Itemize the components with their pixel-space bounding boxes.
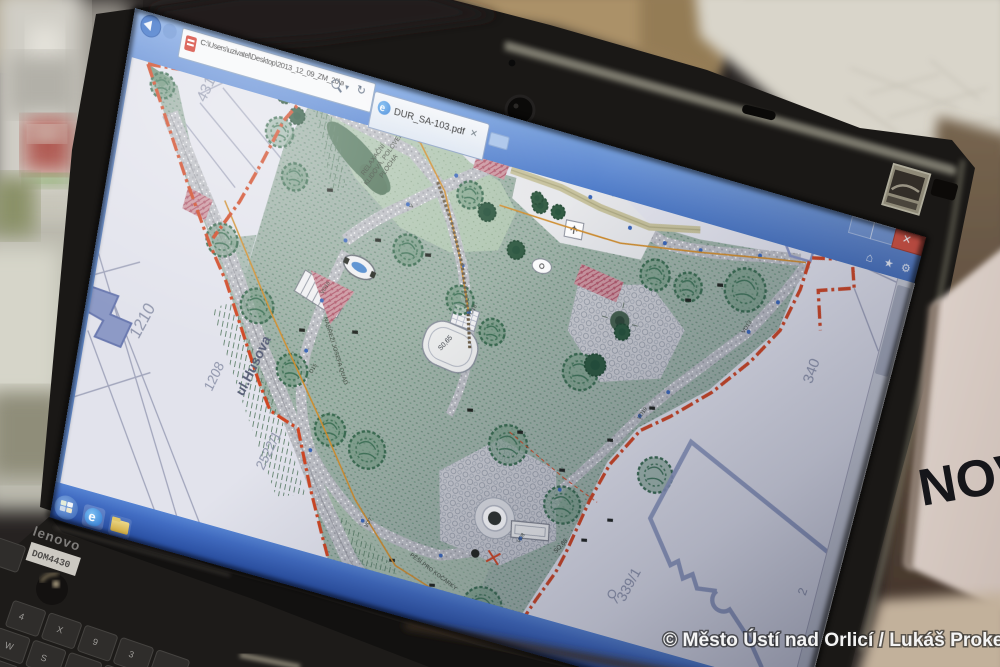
svg-text:© Město Ústí nad Orlicí / Luká: © Město Ústí nad Orlicí / Lukáš Prokeš — [663, 629, 1000, 651]
